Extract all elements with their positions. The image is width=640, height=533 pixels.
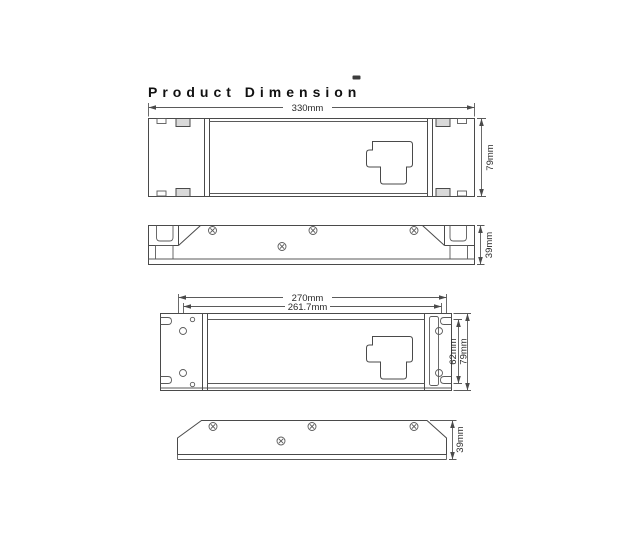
terminal-cover [430, 317, 439, 386]
screw-icon [309, 227, 317, 235]
front-view-body [149, 119, 475, 197]
screw-icon [410, 423, 418, 431]
connector-outline [367, 142, 413, 185]
mounting-view: 270mm 261.7mm [161, 293, 472, 391]
screw-icon [209, 423, 217, 431]
dim-width-label: 330mm [292, 103, 324, 114]
mounting-holes [180, 317, 443, 386]
dim-depth: 39mm [430, 421, 466, 460]
dim-hole-span: 261.7mm [184, 302, 442, 314]
screw-icon [277, 437, 285, 445]
screw-icon [209, 227, 217, 235]
front-view: 330mm 79mm [149, 103, 497, 197]
screw-icon [410, 227, 418, 235]
dim-height-label: 79mm [485, 144, 496, 170]
dim-width: 330mm [149, 103, 475, 117]
end-cap-tabs [157, 119, 467, 197]
product-dimension-page: Product Dimension 330mm [0, 0, 640, 533]
screw-icon [278, 243, 286, 251]
body-inset-lines [210, 122, 428, 194]
dim-depth-label: 39mm [455, 426, 466, 452]
stray-mark [353, 76, 361, 80]
product-dimension-drawing: Product Dimension 330mm [0, 0, 640, 533]
dim-depth-label: 39mm [484, 232, 495, 258]
screw-icons [209, 227, 419, 251]
dim-overall-height-label: 79mm [459, 338, 470, 364]
page-title: Product Dimension [148, 84, 361, 100]
bottom-side-view: 39mm [178, 421, 467, 460]
keyhole-slots [161, 318, 452, 384]
dim-hole-span-label: 261.7mm [288, 302, 328, 313]
mounting-view-body [161, 314, 452, 391]
connector-outline [367, 337, 413, 380]
bottom-side-outline [178, 421, 447, 455]
dim-inner-height-label: 62mm [448, 338, 459, 364]
end-cap-lines [205, 119, 433, 197]
dim-depth: 39mm [477, 226, 495, 265]
inner-body-lines [208, 320, 425, 384]
dim-height: 79mm [477, 119, 496, 197]
base-plate [178, 455, 447, 460]
right-bracket [423, 226, 475, 260]
left-bracket [149, 226, 201, 260]
screw-icon [308, 423, 316, 431]
screw-icons [209, 423, 418, 446]
side-view: 39mm [149, 226, 496, 265]
